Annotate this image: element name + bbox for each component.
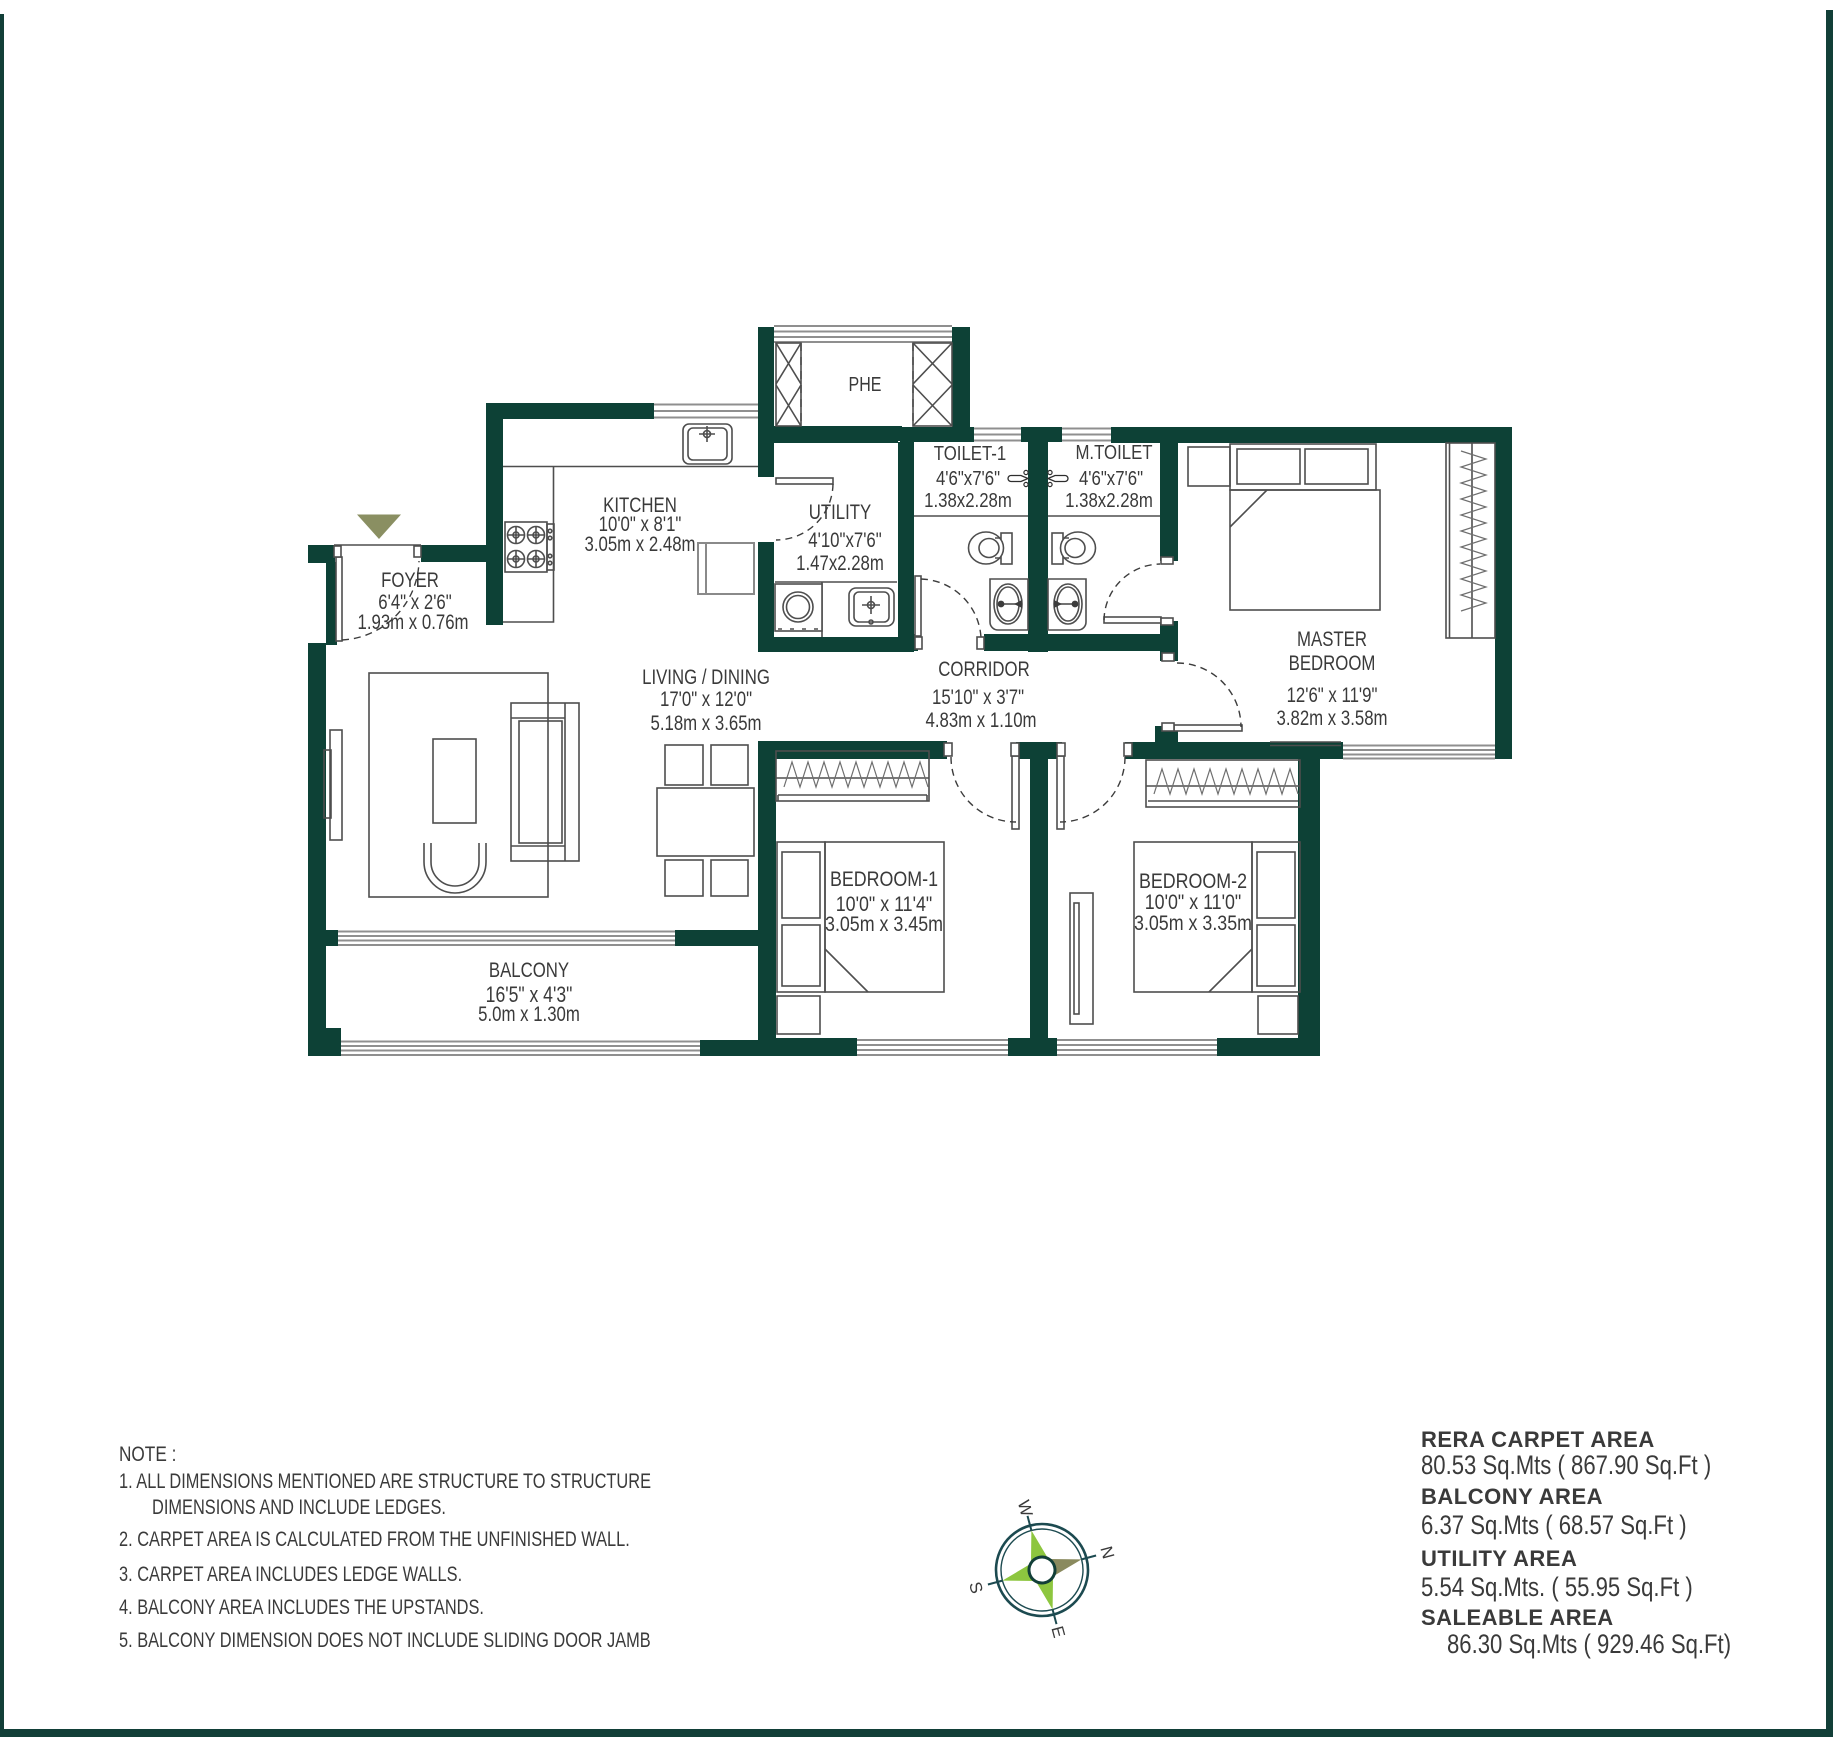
svg-text:1.47x2.28m: 1.47x2.28m [796, 552, 884, 575]
svg-text:4'6"x7'6": 4'6"x7'6" [936, 467, 1000, 490]
svg-text:MASTER: MASTER [1297, 628, 1367, 651]
svg-text:1.38x2.28m: 1.38x2.28m [924, 489, 1012, 512]
svg-text:3.05m x 2.48m: 3.05m x 2.48m [584, 533, 695, 556]
svg-text:4. BALCONY AREA INCLUDES THE: 4. BALCONY AREA INCLUDES THE UPSTANDS. [119, 1595, 484, 1618]
svg-text:FOYER: FOYER [381, 569, 439, 592]
svg-text:3.05m x 3.45m: 3.05m x 3.45m [825, 913, 943, 937]
svg-text:4'6"x7'6": 4'6"x7'6" [1079, 467, 1143, 490]
svg-text:17'0" x 12'0": 17'0" x 12'0" [660, 688, 752, 711]
svg-text:BEDROOM-1: BEDROOM-1 [830, 868, 938, 892]
svg-text:5.54 Sq.Mts. ( 55.95 Sq.Ft ): 5.54 Sq.Mts. ( 55.95 Sq.Ft ) [1421, 1573, 1693, 1603]
svg-text:M.TOILET: M.TOILET [1075, 441, 1152, 464]
svg-text:LIVING / DINING: LIVING / DINING [642, 666, 770, 689]
svg-text:1.38x2.28m: 1.38x2.28m [1065, 489, 1153, 512]
svg-text:1.93m x 0.76m: 1.93m x 0.76m [357, 611, 468, 634]
svg-text:BALCONY AREA: BALCONY AREA [1421, 1484, 1603, 1509]
svg-text:5.18m x 3.65m: 5.18m x 3.65m [650, 712, 761, 735]
svg-text:3. CARPET AREA INCLUDES LEDGE: 3. CARPET AREA INCLUDES LEDGE WALLS. [119, 1562, 462, 1585]
svg-text:15'10" x 3'7": 15'10" x 3'7" [932, 686, 1024, 709]
svg-text:6.37 Sq.Mts ( 68.57 Sq.Ft ): 6.37 Sq.Mts ( 68.57 Sq.Ft ) [1421, 1511, 1687, 1541]
svg-text:NOTE :: NOTE : [119, 1444, 176, 1467]
svg-text:SALEABLE AREA: SALEABLE AREA [1421, 1605, 1614, 1630]
svg-text:2. CARPET AREA IS CALCULATED: 2. CARPET AREA IS CALCULATED FROM THE UN… [119, 1527, 630, 1550]
svg-text:80.53 Sq.Mts ( 867.90 Sq.Ft ): 80.53 Sq.Mts ( 867.90 Sq.Ft ) [1421, 1451, 1711, 1481]
svg-text:1. ALL DIMENSIONS MENTIONED A: 1. ALL DIMENSIONS MENTIONED ARE STRUCTUR… [119, 1469, 651, 1492]
svg-text:3.05m x 3.35m: 3.05m x 3.35m [1134, 912, 1252, 936]
svg-text:BALCONY: BALCONY [489, 959, 570, 982]
svg-text:UTILITY: UTILITY [809, 501, 872, 524]
svg-text:UTILITY AREA: UTILITY AREA [1421, 1546, 1577, 1571]
svg-text:3.82m x 3.58m: 3.82m x 3.58m [1276, 707, 1387, 730]
svg-text:5. BALCONY DIMENSION DOES NOT: 5. BALCONY DIMENSION DOES NOT INCLUDE SL… [119, 1628, 651, 1651]
svg-text:BEDROOM: BEDROOM [1289, 652, 1376, 675]
svg-text:RERA CARPET AREA: RERA CARPET AREA [1421, 1427, 1655, 1452]
svg-text:5.0m x 1.30m: 5.0m x 1.30m [478, 1003, 580, 1026]
svg-text:86.30 Sq.Mts ( 929.46 Sq.Ft): 86.30 Sq.Mts ( 929.46 Sq.Ft) [1447, 1630, 1731, 1660]
svg-text:CORRIDOR: CORRIDOR [938, 658, 1029, 681]
svg-text:4'10"x7'6": 4'10"x7'6" [808, 529, 881, 552]
svg-text:4.83m x 1.10m: 4.83m x 1.10m [925, 709, 1036, 732]
svg-text:PHE: PHE [849, 373, 882, 395]
svg-text:12'6" x 11'9": 12'6" x 11'9" [1287, 684, 1378, 707]
svg-text:DIMENSIONS AND INCLUDE LEDGES.: DIMENSIONS AND INCLUDE LEDGES. [152, 1495, 446, 1518]
svg-text:TOILET-1: TOILET-1 [934, 442, 1006, 465]
